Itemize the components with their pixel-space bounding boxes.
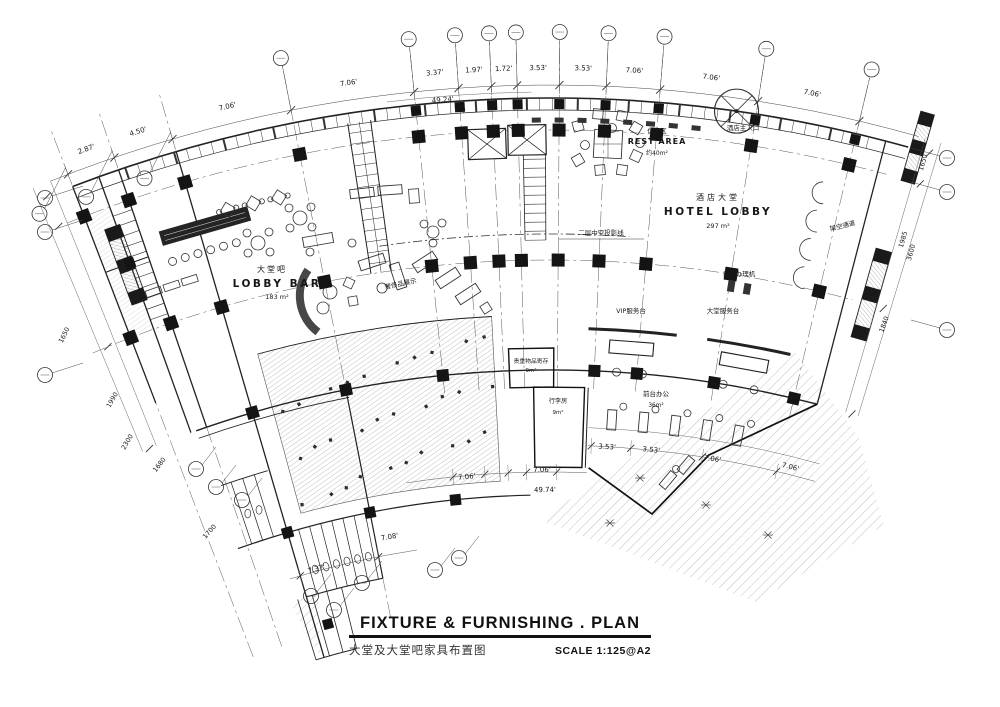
room-label-lobby-en: HOTEL LOBBY [664,206,772,218]
column [630,367,643,380]
mullion-tick [704,107,705,119]
lounge-chair [244,249,252,257]
dim-label-top: 3.53' [529,64,547,72]
mullion-tick [804,123,806,135]
office-desk [607,410,617,431]
bar-seat-mark [491,385,495,389]
mullion-tick [248,133,251,145]
mullion-tick [149,160,153,171]
dim-slash [297,572,304,579]
bar-stool [232,239,240,247]
drawing-subtitle-cn: 大堂及大堂吧家具布置图 [349,642,487,658]
bar-stool [181,253,189,261]
toilet-fixture [343,557,351,567]
label-elevated-passage: 架空通道 [829,218,857,233]
bar-seat-mark [345,486,348,489]
mullion-tick [211,142,214,154]
dim-label-top: 7.06' [339,78,358,89]
mullion-tick [349,113,351,125]
dim-label-top: 3.53' [574,64,592,72]
room-label-rest-cn: 休息区 [647,126,667,135]
dim-slash [880,305,887,312]
dim-slash [410,88,418,96]
room-label-office-area: 36m² [648,402,663,409]
mullion-tick [641,101,642,113]
mullion-tick [792,121,794,133]
office-wall [585,388,588,468]
column [455,126,469,140]
office-desk [638,412,649,433]
room-label-lobby-area: 297 m² [706,222,730,230]
column [463,256,477,270]
mullion-tick [841,131,844,143]
bubble-leader [607,41,609,77]
display-shelf [181,274,198,285]
floor-plan-drawing: 2.87'4.50'7.06'7.06'3.37'1.97'1.72'3.53'… [0,0,1000,707]
bar-seat-mark [362,374,366,378]
bar-table [317,302,329,314]
display-shelf [163,280,180,292]
mullion-tick [616,100,617,112]
mullion-tick [399,107,400,119]
lounge-chair [285,204,293,212]
dim-slash [169,135,177,143]
bar-chair [343,277,355,289]
lounge-chair [438,219,446,227]
column [512,124,525,137]
lounge-table [251,236,265,250]
dim-label-top: 7.06' [702,73,720,83]
bar-seat-mark [300,503,303,506]
stall-wall [299,529,317,594]
dim-slash [146,445,153,452]
lounge-chair [307,203,315,211]
room-label-rest-en: REST AREA [628,137,687,146]
planter-box [646,121,655,127]
dim-label-right: 3600 [905,243,917,261]
toilet-fixture [354,554,362,564]
bubble-leader [410,47,414,83]
bubble-leader [52,220,83,230]
dim-slash [855,117,863,125]
column [553,123,566,136]
dim-label-bottom: 3.53' [598,443,616,452]
bubble-leader [282,66,289,101]
dim-slash [848,410,855,417]
lounge-chair [286,224,294,232]
bubble-leader [52,186,83,196]
office-chair [620,403,627,410]
column [598,124,612,138]
forecourt-paving-hatch [540,352,884,602]
dim-label-right: 1985 [897,230,909,248]
bar-stool [169,257,177,265]
dim-slash [110,154,118,162]
column [339,383,353,397]
dim-label-bottom: 7.06' [533,466,551,474]
planter-box [623,120,632,126]
toilet-fixture [365,552,373,562]
bubble-leader [222,465,236,483]
column [552,253,565,266]
planter-box [691,125,701,131]
mullion-tick [425,104,426,116]
room-label-lobby-cn: 酒店大堂 [696,192,740,202]
column [512,99,522,109]
column [707,376,721,390]
sofa [350,187,375,198]
drawing-scale: SCALE 1:125@A2 [555,645,651,657]
column [121,192,138,209]
lounge-chair [429,239,437,247]
mullion-tick [323,117,325,129]
mullion-tick [298,122,300,134]
dim-label-left: 1650 [57,326,71,344]
column [653,103,664,114]
room-label-bar-cn: 大堂吧 [257,264,287,274]
dim-label-left: 2300 [120,433,135,451]
bar-seat-mark [281,410,285,414]
column [292,147,307,162]
room-label-bar-area: 183 m² [265,293,289,301]
bubble-leader [455,43,457,79]
vip-desk [609,340,654,356]
drawing-title: FIXTURE & FURNISHING . PLAN [349,614,651,638]
door-swing-arc [812,182,823,204]
label-vip-desk: VIP服务台 [616,306,646,315]
lounge-chair [266,248,274,256]
bubble-leader [52,363,83,373]
floor-plan-page: 2.87'4.50'7.06'7.06'3.37'1.97'1.72'3.53'… [0,0,1000,707]
column [639,257,653,271]
mullion-tick [261,130,264,142]
lounge-chair [243,229,251,237]
exterior-step-hatch [289,594,321,658]
dim-label-overall-bottom: 49.74' [534,486,556,494]
stall-wall [231,482,252,544]
column [487,100,497,110]
dim-slash [64,170,72,178]
lounge-chair [348,239,356,247]
mullion-tick [666,103,667,115]
mullion-tick [717,109,719,121]
rest-chair [629,149,642,162]
column [214,299,230,315]
bubble-leader [661,45,664,81]
column [554,99,564,109]
column [811,284,827,300]
dim-label-bottom: 7.08' [380,532,399,543]
mullion-tick [199,145,202,157]
column [436,369,449,382]
stall-wall [354,516,368,582]
dim-label-left: 1700 [201,523,218,541]
bar-seat-mark [395,361,398,364]
label-main-entrance: 酒店主入口 [727,123,760,132]
side-table [409,189,420,204]
self-service-kiosk [743,283,752,295]
bubble-leader [150,132,171,173]
lobby-desk [719,352,769,373]
stall-wall [343,518,358,583]
column [849,134,861,146]
label-lobby-desk: 大堂服务台 [707,306,740,315]
display-case [435,267,461,288]
stall-wall [243,478,263,540]
column [322,618,334,630]
column [245,405,260,420]
mullion-tick [186,149,189,161]
column [454,102,465,113]
toilet-fixture [333,559,341,569]
mullion-tick [236,136,239,148]
self-service-kiosk [727,280,736,292]
mullion-tick [779,118,781,130]
dim-label-top: 7.06' [218,101,237,113]
dim-label-top: 7.06' [803,88,822,99]
mullion-tick [437,103,438,115]
bar-stool [194,250,202,258]
bar-seat-mark [451,444,454,447]
planter-box [555,118,564,123]
title-block: FIXTURE & FURNISHING . PLAN 大堂及大堂吧家具布置图 … [349,614,651,658]
planter-box [577,118,586,123]
mullion-tick [336,115,338,127]
dim-slash [104,343,111,350]
sofa [378,185,403,196]
toilet-fixture [256,506,262,515]
cafe-table [246,196,261,211]
mullion-tick [387,108,388,120]
mullion-tick [691,106,692,118]
column [515,254,528,267]
dim-label-left: 1680 [151,456,167,474]
door-swing-arc [806,210,817,232]
bubble-leader [911,320,940,328]
mullion-tick [476,100,477,112]
dim-label-overall-top: 49.24' [432,95,455,105]
bar-stool [219,242,227,250]
mullion-tick [361,111,363,123]
bar-stool [207,246,215,254]
mullion-tick [767,116,769,128]
bubble-leader [911,182,940,190]
room-label-office: 前台办公 [643,389,670,398]
room-label-rest-area: 约40m² [646,149,668,157]
stall-wall [310,526,327,591]
column [592,254,606,268]
lounge-table [293,211,307,225]
bar-seat-mark [329,438,333,442]
door-swing-arc [793,267,804,289]
dim-label-top: 1.97' [465,66,483,75]
display-case [480,302,492,314]
toilet-fixture [245,509,251,518]
bar-counter-top [159,206,252,246]
bubble-leader [317,574,331,592]
label-atrium-projection: 二层中空投影线 [578,228,624,237]
title-sub-row: 大堂及大堂吧家具布置图 SCALE 1:125@A2 [349,642,651,658]
bubble-leader [441,548,455,566]
mullion-tick [223,139,226,151]
sofa [302,232,333,247]
mullion-tick [450,102,451,114]
lounge-chair [306,248,314,256]
lounge-chair [308,223,316,231]
bar-seat-mark [440,395,444,399]
bubble-leader [759,57,765,93]
planter-box [600,118,609,123]
cafe-table [271,190,286,205]
bar-floor-hatch [258,317,501,514]
mullion-tick [679,104,680,116]
dim-edge-right [846,138,926,412]
column [492,254,506,268]
dim-label-top: 1.72' [495,64,513,73]
dim-label-right: 1840 [878,315,891,333]
dim-label-top: 2.87' [77,143,96,157]
door-swing-arc [800,238,811,260]
bar-chair [348,296,358,306]
column [487,124,501,138]
planter-box [669,123,678,129]
column [281,526,295,540]
dim-slash [287,106,295,114]
vip-desk-back [589,329,677,336]
stair-step [147,303,165,309]
column [177,174,193,190]
room-label-bar-en: LOBBY BAR [233,278,322,290]
column [425,259,439,273]
stair-step [113,210,132,217]
mullion-tick [866,137,869,149]
dim-label-top: 3.37' [426,68,444,77]
column [841,157,857,173]
column [744,138,759,153]
dim-label-top: 7.06' [625,66,643,75]
office-chair [684,410,691,417]
column [163,315,180,332]
bubble-leader [861,77,869,112]
bubble-leader [202,447,216,465]
dim-label-bottom: 7.06' [458,472,476,482]
rest-chair [595,165,606,176]
bubble-leader [44,168,65,209]
room-label-valuables: 贵重物品寄存 [514,357,549,365]
mullion-tick [273,127,275,139]
dim-slash [754,97,762,105]
mullion-tick [162,156,165,167]
lounge-chair [420,220,428,228]
bubble-leader [489,41,491,77]
rest-chair-round [581,141,590,150]
room-label-valuables-area: 9m² [525,367,536,374]
column [449,494,461,506]
bubble-leader [465,536,479,554]
screen-wall [901,111,934,184]
mullion-tick [311,120,313,132]
bar-back-counter [159,206,252,246]
bubble-leader [516,40,517,76]
dim-label-left: 1990 [105,391,120,409]
mullion-tick [125,168,129,179]
mullion-tick [286,125,288,137]
bar-seat-mark [430,351,434,355]
column [411,105,422,116]
dim-label-top: 4.50' [129,125,148,138]
lounge-table [427,226,439,238]
display-case [455,283,481,304]
revolving-door-hub [735,109,739,113]
mullion-tick [817,125,819,137]
rest-chair [571,153,585,167]
column [588,365,600,377]
room-label-luggage-area: 9m² [552,409,563,416]
column [600,100,610,110]
lounge-chair [265,228,273,236]
column [412,130,426,144]
rest-chair [616,164,627,175]
mullion-tick [374,110,376,122]
mullion-tick [729,110,731,122]
room-label-luggage: 行李房 [549,397,568,405]
column [364,506,377,519]
mullion-tick [829,128,832,140]
rest-chair [593,109,604,120]
planter-box [532,118,541,123]
label-self-service: 自助办理机 [723,269,756,278]
mullion-tick [628,100,629,112]
